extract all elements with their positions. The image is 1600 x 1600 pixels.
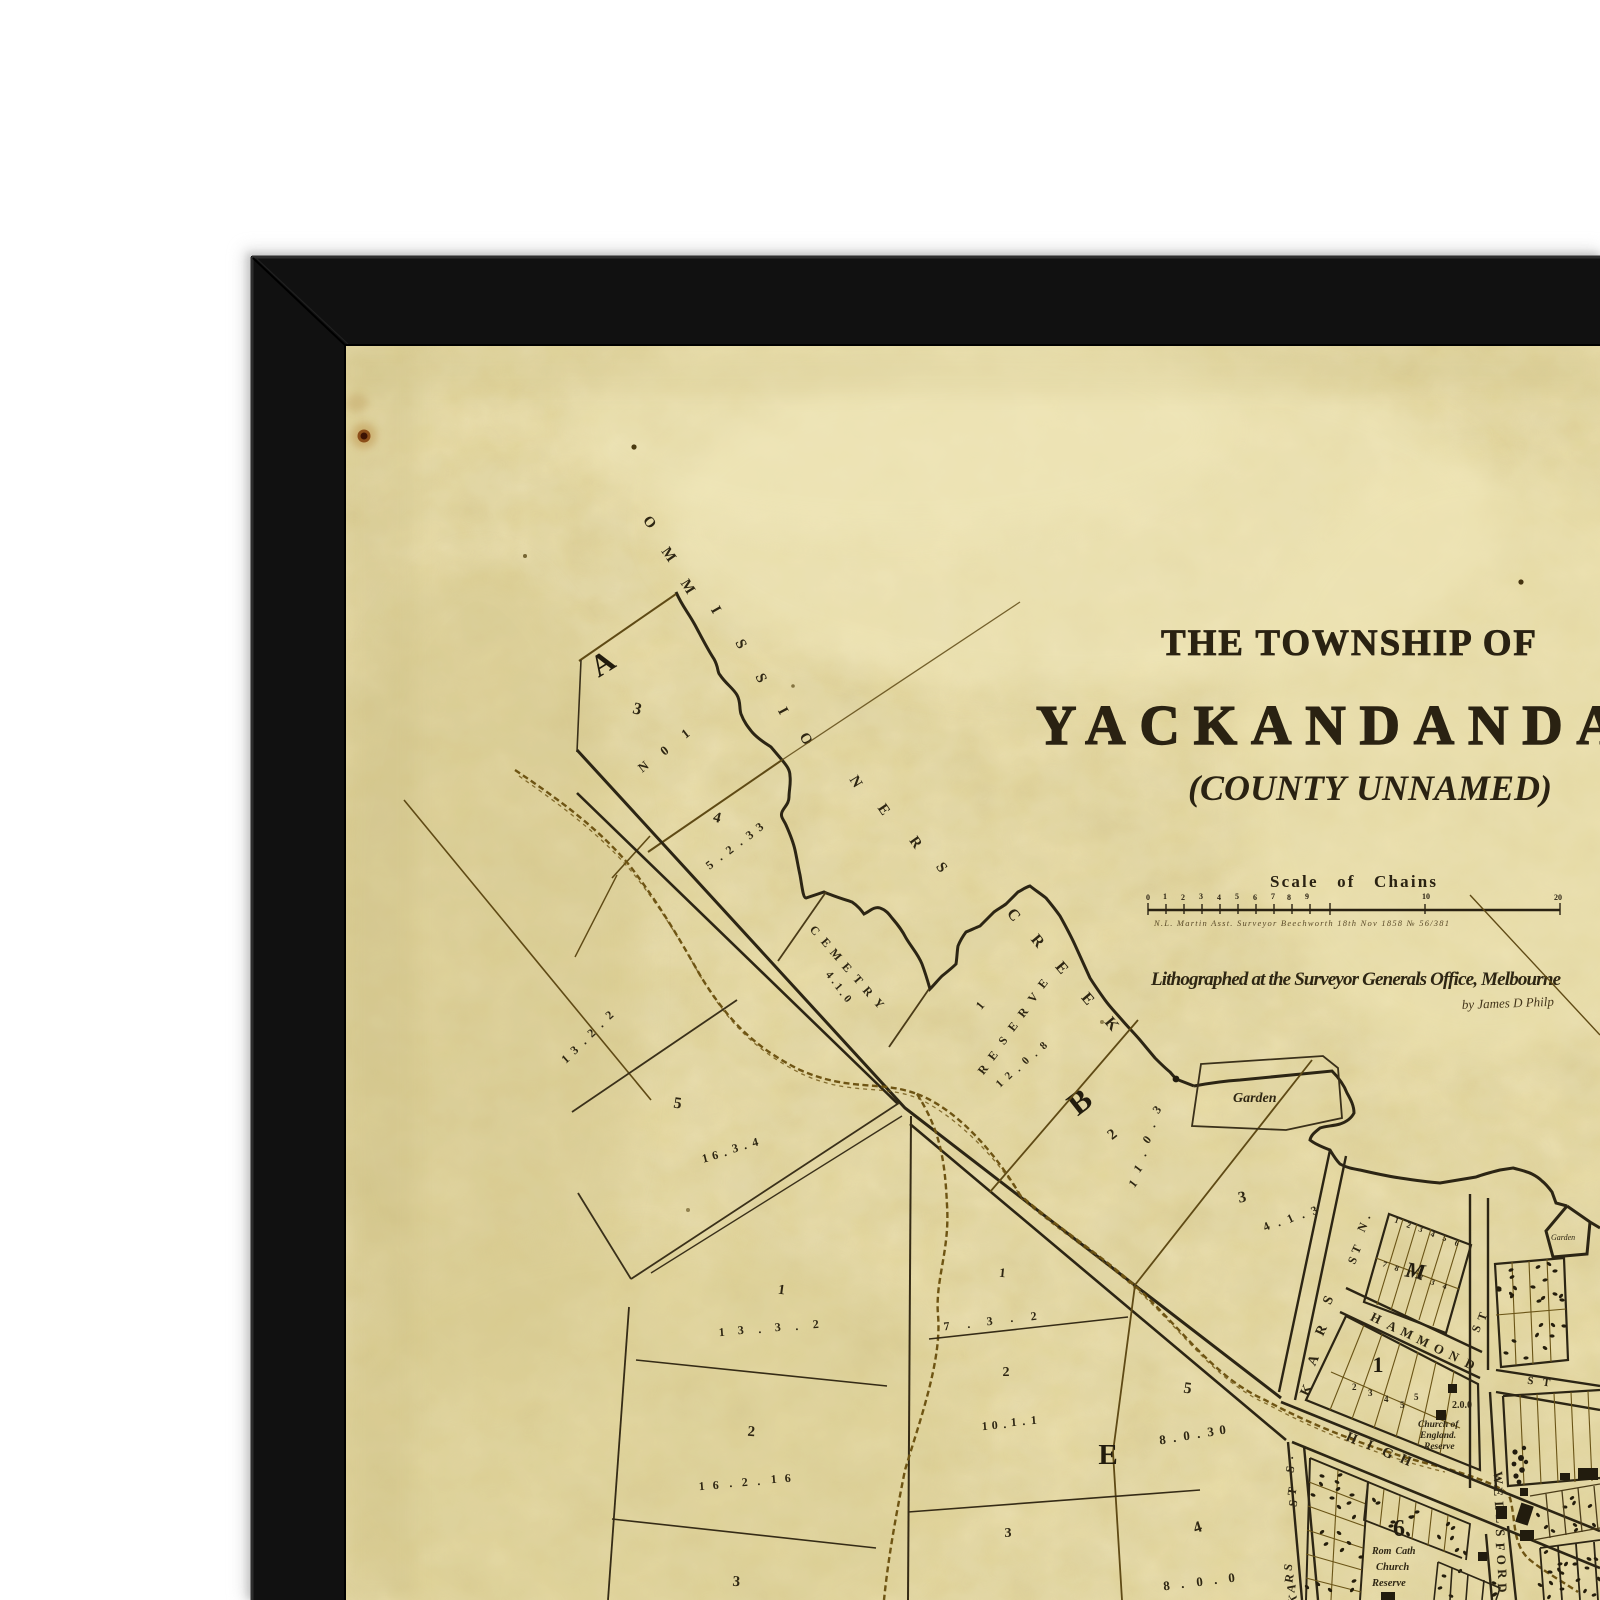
svg-text:2: 2 <box>812 1317 819 1331</box>
svg-text:S: S <box>1493 1529 1508 1537</box>
svg-text:1: 1 <box>718 1325 725 1339</box>
svg-text:4: 4 <box>1217 893 1221 902</box>
svg-text:Rom Cath: Rom Cath <box>1371 1546 1416 1557</box>
svg-text:4: 4 <box>1384 1394 1389 1404</box>
svg-text:2: 2 <box>1352 1382 1357 1392</box>
svg-text:E: E <box>1098 1439 1117 1471</box>
svg-text:5: 5 <box>1400 1400 1405 1410</box>
svg-text:Lithographed at the Surveyor G: Lithographed at the Surveyor Generals Of… <box>1150 969 1562 990</box>
svg-text:1: 1 <box>1373 1352 1384 1377</box>
svg-text:8: 8 <box>1287 893 1291 902</box>
svg-text:W: W <box>1491 1471 1507 1485</box>
svg-text:3: 3 <box>737 1323 744 1337</box>
svg-text:F: F <box>1493 1542 1508 1551</box>
svg-text:6: 6 <box>784 1471 791 1485</box>
svg-text:6: 6 <box>1253 893 1257 902</box>
svg-text:0: 0 <box>1146 893 1150 902</box>
svg-text:THE TOWNSHIP OF: THE TOWNSHIP OF <box>1161 623 1541 664</box>
svg-text:(COUNTY: (COUNTY <box>1188 768 1349 808</box>
svg-text:1: 1 <box>1010 1415 1017 1429</box>
svg-text:1: 1 <box>770 1472 777 1486</box>
svg-text:Garden: Garden <box>1551 1233 1575 1242</box>
svg-text:England.: England. <box>1419 1431 1456 1441</box>
svg-text:0: 0 <box>991 1418 998 1432</box>
svg-text:Reserve: Reserve <box>1371 1578 1406 1589</box>
svg-text:10: 10 <box>1422 892 1430 901</box>
svg-text:2: 2 <box>747 1424 756 1440</box>
svg-text:3: 3 <box>1368 1388 1373 1398</box>
svg-text:7: 7 <box>1271 892 1275 901</box>
svg-text:1: 1 <box>1163 892 1167 901</box>
svg-text:6: 6 <box>712 1478 719 1492</box>
svg-text:N.L. Martin Asst. Surveyor B: N.L. Martin Asst. Surveyor Beechworth 18… <box>1153 918 1449 928</box>
svg-text:2: 2 <box>741 1475 748 1489</box>
svg-text:2: 2 <box>1181 893 1185 902</box>
svg-text:2: 2 <box>1003 1365 1010 1380</box>
svg-text:1: 1 <box>981 1419 988 1433</box>
svg-text:6: 6 <box>1393 1516 1405 1542</box>
svg-text:Garden: Garden <box>1233 1091 1277 1106</box>
svg-text:5: 5 <box>1414 1392 1419 1402</box>
svg-text:O: O <box>1494 1554 1510 1565</box>
svg-text:5: 5 <box>1235 892 1239 901</box>
svg-text:3: 3 <box>732 1574 741 1590</box>
svg-text:R: R <box>1495 1569 1511 1580</box>
svg-text:E: E <box>1491 1487 1506 1496</box>
svg-text:Scale of Chains: Scale of Chains <box>1270 872 1436 891</box>
svg-text:2.0.0: 2.0.0 <box>1452 1400 1472 1411</box>
svg-text:1: 1 <box>1030 1413 1037 1427</box>
svg-text:D: D <box>1495 1583 1510 1593</box>
svg-text:Church of: Church of <box>1418 1420 1459 1430</box>
svg-text:20: 20 <box>1554 893 1562 902</box>
svg-text:Church: Church <box>1376 1562 1409 1573</box>
svg-text:1: 1 <box>698 1479 705 1493</box>
svg-text:3: 3 <box>1005 1526 1012 1541</box>
svg-text:Reserve: Reserve <box>1423 1442 1455 1452</box>
svg-text:3: 3 <box>774 1320 781 1334</box>
svg-text:UNNAMED): UNNAMED) <box>1356 768 1552 808</box>
svg-text:3: 3 <box>1199 892 1203 901</box>
svg-text:YACKANDANDA: YACKANDANDA <box>1036 695 1600 757</box>
svg-text:9: 9 <box>1305 892 1309 901</box>
